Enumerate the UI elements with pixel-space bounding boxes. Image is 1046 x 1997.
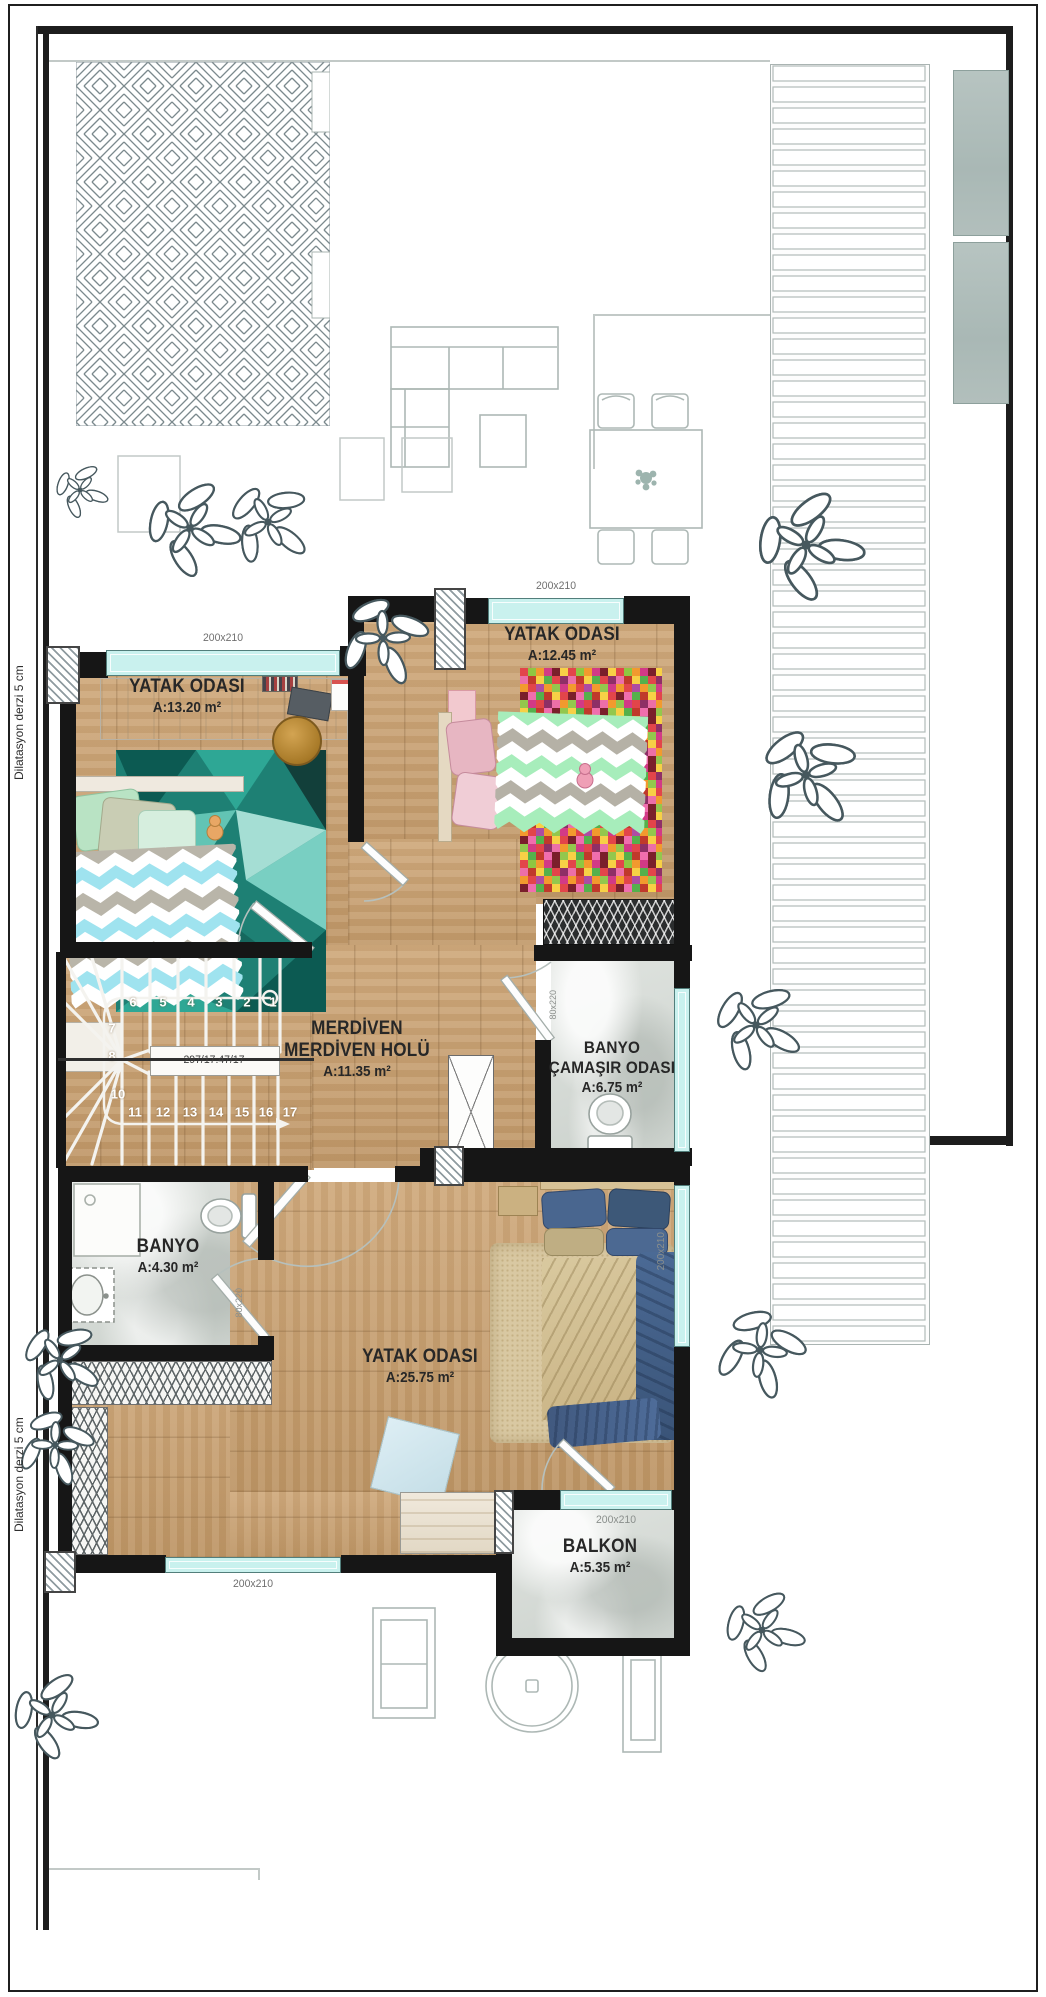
room-area: A:5.35 m² (563, 1558, 637, 1578)
tree-icon (140, 470, 251, 589)
room-name: BALKON (563, 1536, 637, 1558)
room-name: YATAK ODASI (362, 1346, 478, 1368)
room-name: BANYO (549, 1038, 675, 1058)
room-label-bath-laundry: BANYO ÇAMAŞIR ODASI A:6.75 m² (549, 1038, 675, 1098)
room-name2: ÇAMAŞIR ODASI (549, 1058, 675, 1078)
window-size-label: 200x210 (596, 1514, 636, 1526)
room-label-stair-hall: MERDİVEN MERDİVEN HOLÜ A:11.35 m² (284, 1018, 430, 1082)
tree-icon (735, 706, 885, 854)
room-label-bedroom-left: YATAK ODASI A:13.20 m² (129, 676, 245, 718)
room-label-balcony: BALKON A:5.35 m² (563, 1536, 637, 1578)
room-name: YATAK ODASI (129, 676, 245, 698)
room-label-master-bedroom: YATAK ODASI A:25.75 m² (362, 1346, 478, 1388)
room-area: A:13.20 m² (129, 698, 245, 718)
trees-layer (0, 0, 1046, 1997)
tree-icon (699, 964, 823, 1092)
room-name: MERDİVEN (284, 1018, 430, 1040)
room-name: BANYO (137, 1236, 200, 1258)
room-label-bedroom-right: YATAK ODASI A:12.45 m² (504, 624, 620, 666)
floor-plan-canvas: 297/17.47/17 1 2 3 4 5 6 7 8 10 11 12 13… (0, 0, 1046, 1997)
tree-icon (323, 583, 448, 702)
tree-icon (8, 1663, 105, 1769)
room-label-bath: BANYO A:4.30 m² (137, 1236, 200, 1278)
expansion-joint-note: Dilatasyon derzi 5 cm (12, 640, 26, 780)
window-size-label: 200x210 (233, 1578, 273, 1590)
window-size-label: 200x210 (203, 632, 243, 644)
window-size-label: 200x210 (536, 580, 576, 592)
expansion-joint-note: Dilatasyon derzi 5 cm (12, 1392, 26, 1532)
room-area: A:4.30 m² (137, 1258, 200, 1278)
room-area: A:6.75 m² (549, 1078, 675, 1098)
room-area: A:25.75 m² (362, 1368, 478, 1388)
tree-icon (718, 1579, 816, 1684)
tree-icon (49, 455, 118, 528)
room-area: A:12.45 m² (504, 646, 620, 666)
tree-icon (703, 1301, 820, 1410)
stair-dimension: 297/17.47/17 (183, 1054, 244, 1066)
window-size-label-vertical: 200x210 (656, 1232, 667, 1270)
door-size-label: 80x220 (548, 990, 558, 1020)
door-size-label: 80x220 (234, 1288, 244, 1318)
tree-icon (753, 481, 873, 611)
room-name: YATAK ODASI (504, 624, 620, 646)
tree-icon (211, 463, 334, 587)
room-area: A:11.35 m² (284, 1062, 430, 1082)
